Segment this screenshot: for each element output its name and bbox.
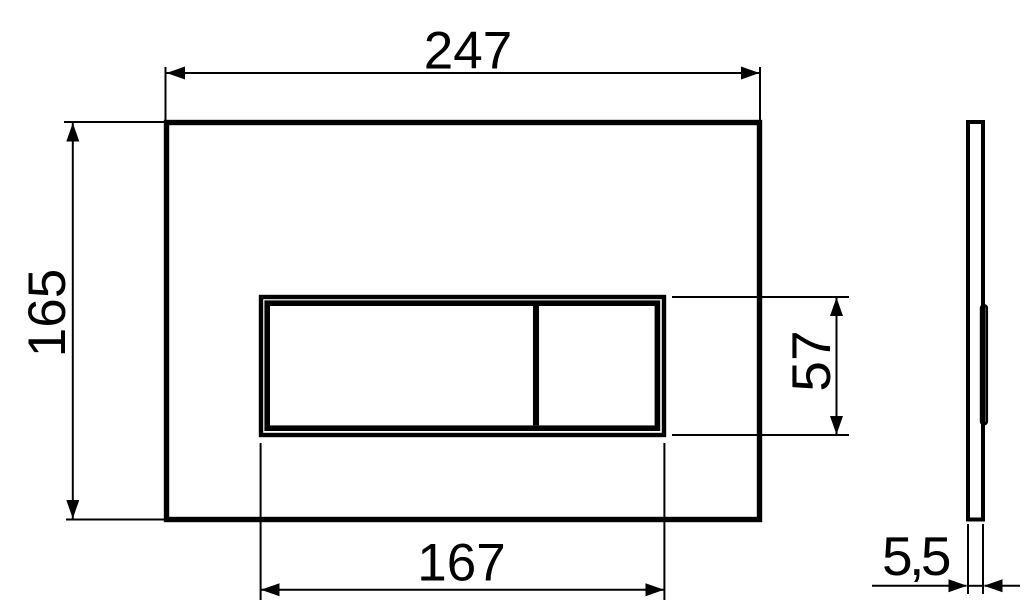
svg-text:5,5: 5,5 <box>882 525 950 587</box>
svg-text:57: 57 <box>780 330 842 391</box>
svg-text:247: 247 <box>424 22 512 81</box>
svg-text:167: 167 <box>417 534 505 593</box>
svg-text:165: 165 <box>18 269 77 357</box>
